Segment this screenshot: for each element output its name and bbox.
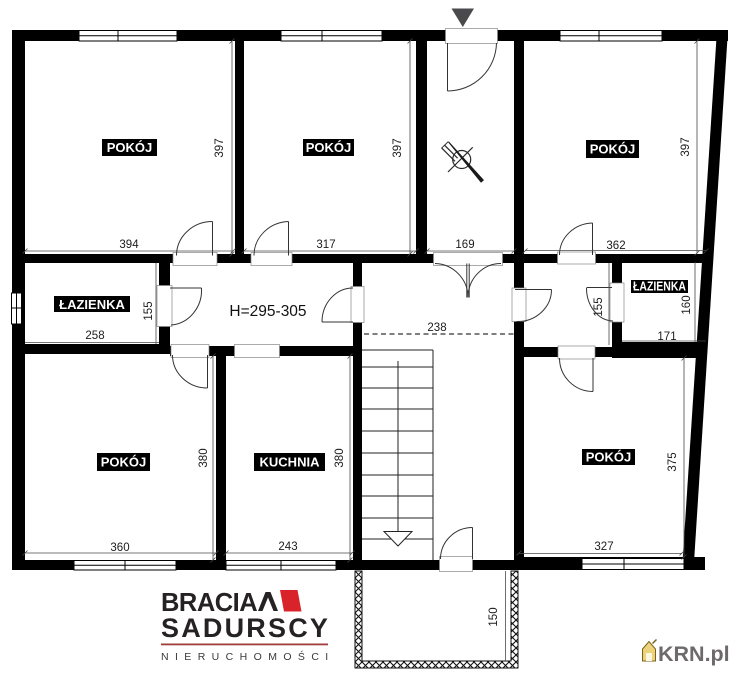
svg-text:397: 397 bbox=[214, 138, 226, 157]
svg-text:327: 327 bbox=[594, 541, 613, 553]
svg-text:258: 258 bbox=[85, 330, 104, 342]
svg-text:H=295-305: H=295-305 bbox=[229, 303, 306, 320]
svg-text:360: 360 bbox=[110, 542, 129, 554]
svg-text:155: 155 bbox=[593, 297, 605, 316]
svg-text:243: 243 bbox=[278, 541, 297, 553]
svg-text:POKÓJ: POKÓJ bbox=[590, 142, 636, 157]
svg-text:397: 397 bbox=[680, 137, 692, 156]
svg-text:POKÓJ: POKÓJ bbox=[107, 140, 153, 155]
svg-text:160: 160 bbox=[681, 295, 693, 314]
svg-text:155: 155 bbox=[143, 301, 155, 320]
svg-text:380: 380 bbox=[334, 448, 346, 467]
svg-text:362: 362 bbox=[606, 240, 625, 252]
svg-text:380: 380 bbox=[198, 448, 210, 467]
svg-text:317: 317 bbox=[316, 239, 335, 251]
svg-text:397: 397 bbox=[392, 138, 404, 157]
svg-text:SADURSCY: SADURSCY bbox=[161, 613, 330, 643]
svg-text:ŁAZIENKA: ŁAZIENKA bbox=[633, 279, 686, 294]
svg-text:KUCHNIA: KUCHNIA bbox=[260, 455, 321, 470]
svg-text:238: 238 bbox=[427, 322, 446, 334]
svg-text:394: 394 bbox=[119, 239, 139, 251]
svg-text:375: 375 bbox=[667, 452, 679, 471]
svg-text:POKÓJ: POKÓJ bbox=[586, 450, 632, 465]
svg-text:150: 150 bbox=[488, 607, 500, 626]
svg-text:KRN.pl: KRN.pl bbox=[658, 642, 730, 666]
svg-text:ŁAZIENKA: ŁAZIENKA bbox=[59, 297, 125, 312]
svg-text:POKÓJ: POKÓJ bbox=[101, 455, 147, 470]
svg-text:171: 171 bbox=[657, 331, 676, 343]
svg-text:169: 169 bbox=[455, 239, 474, 251]
svg-text:NIERUCHOMOŚCI: NIERUCHOMOŚCI bbox=[161, 650, 335, 663]
svg-text:POKÓJ: POKÓJ bbox=[306, 140, 352, 155]
